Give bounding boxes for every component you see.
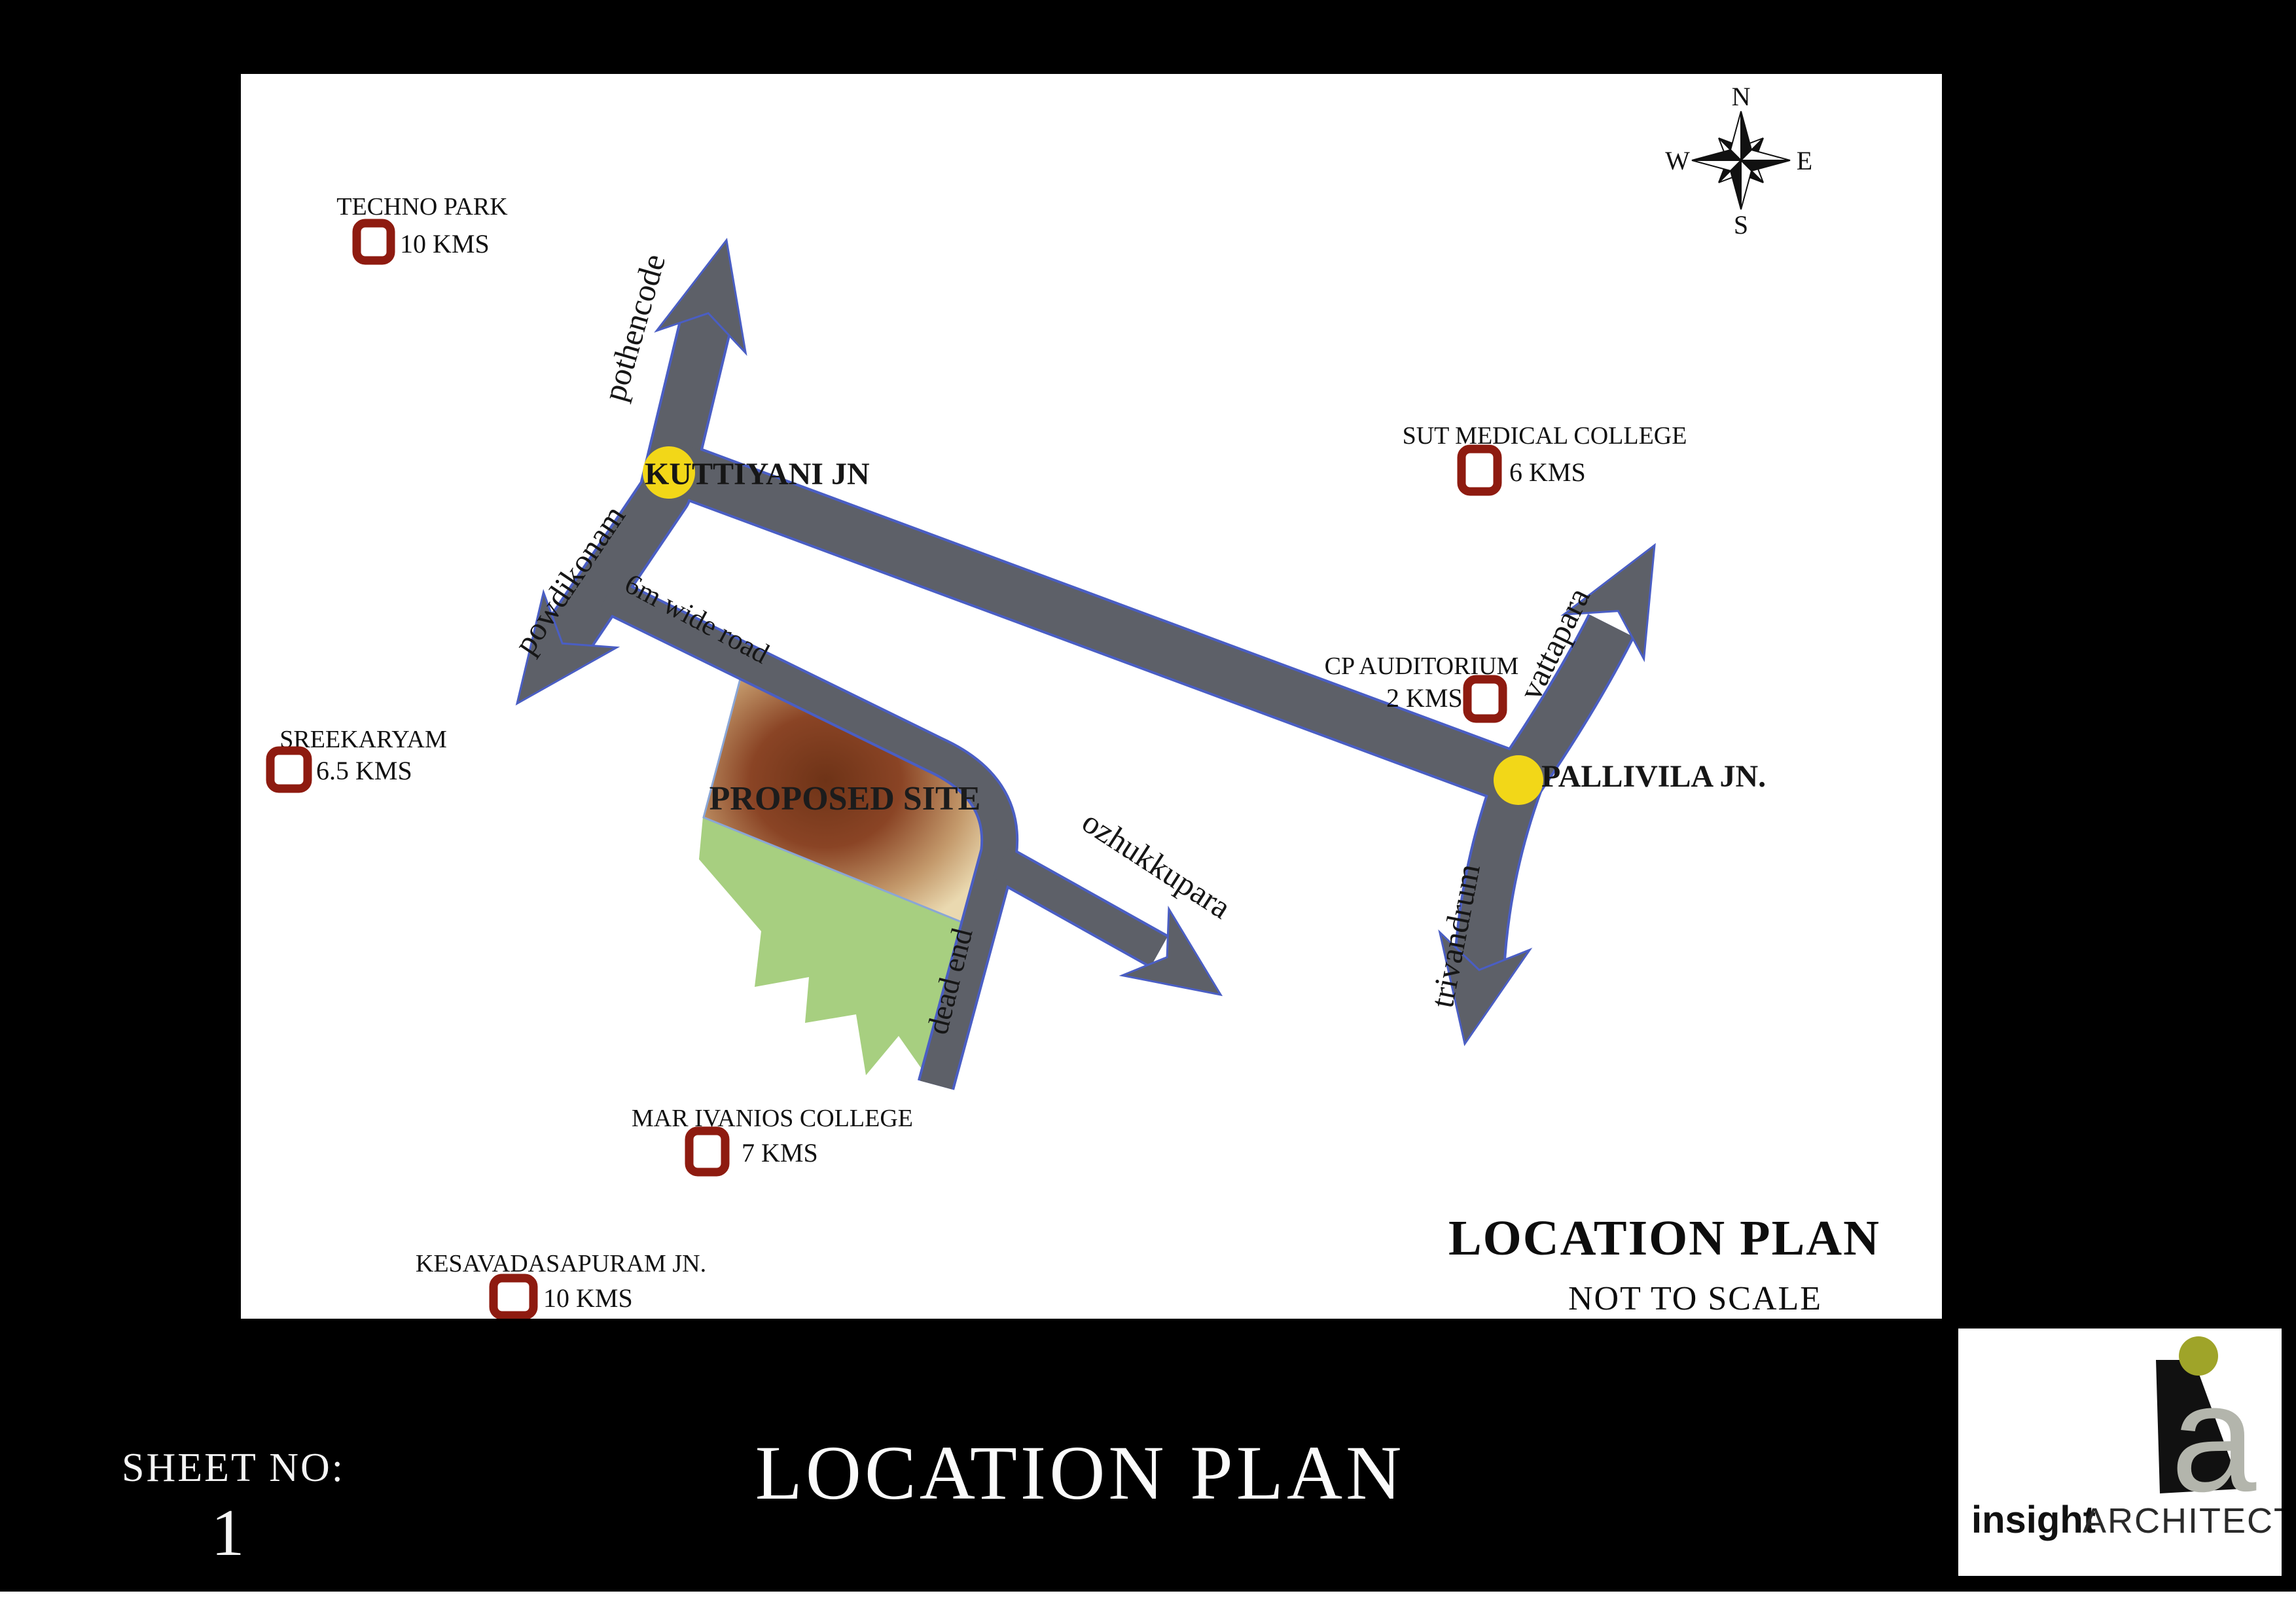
firm-name-primary: insight	[1971, 1499, 2096, 1541]
landmark-marker-icon	[270, 751, 308, 789]
logo-letter-a: a	[2171, 1351, 2257, 1524]
landmark-marker-icon	[357, 223, 391, 260]
landmark-marker-icon	[1467, 679, 1503, 719]
sheet-no-label: SHEET NO:	[122, 1445, 345, 1491]
drawing-title: LOCATION PLAN	[687, 1435, 1473, 1512]
road-ozhukkupara	[1000, 863, 1159, 952]
landmark-marker-icon	[689, 1131, 725, 1172]
sheet-number: 1	[188, 1500, 267, 1567]
landmark-sreekaryam: SREEKARYAM 6.5 KMS	[270, 726, 447, 789]
label-proposed-site: PROPOSED SITE	[709, 780, 981, 817]
landmark-name: MAR IVANIOS COLLEGE	[632, 1105, 913, 1132]
landmark-techno-park: TECHNO PARK 10 KMS	[336, 193, 508, 260]
landmark-distance: 10 KMS	[400, 229, 490, 259]
landmark-name: TECHNO PARK	[336, 193, 508, 221]
compass-west-label: W	[1665, 146, 1690, 175]
firm-name-secondary: ARCHITECTS	[2083, 1501, 2282, 1541]
compass-east-label: E	[1797, 146, 1812, 175]
label-kuttiyani-jn: KUTTIYANI JN	[645, 457, 870, 491]
landmark-name: KESAVADASAPURAM JN.	[416, 1250, 706, 1277]
landmark-marker-icon	[493, 1278, 533, 1315]
landmark-distance: 6 KMS	[1509, 457, 1586, 487]
landmark-distance: 10 KMS	[543, 1283, 633, 1313]
landmark-sut-medical-college: SUT MEDICAL COLLEGE 6 KMS	[1403, 422, 1687, 491]
landmark-name: SUT MEDICAL COLLEGE	[1403, 422, 1687, 450]
firm-logo-box: a insight ARCHITECTS	[1958, 1329, 2282, 1576]
firm-logo: a insight ARCHITECTS	[1958, 1329, 2282, 1576]
landmark-distance: 2 KMS	[1386, 683, 1463, 713]
landmark-distance: 7 KMS	[742, 1138, 818, 1168]
pallivila-junction-dot	[1494, 755, 1543, 805]
location-plan-map: pothencode powdikonam 6m wide road dead …	[241, 74, 1942, 1319]
compass-rose-icon: N E S W	[1665, 82, 1812, 240]
bottom-margin-strip	[0, 1592, 2296, 1623]
landmark-marker-icon	[1462, 449, 1498, 491]
map-scale-note: NOT TO SCALE	[1568, 1280, 1822, 1317]
compass-north-label: N	[1732, 82, 1751, 111]
landmark-distance: 6.5 KMS	[316, 756, 412, 785]
landmark-kesavadasapuram-jn: KESAVADASAPURAM JN. 10 KMS	[416, 1250, 706, 1315]
sheet-canvas: pothencode powdikonam 6m wide road dead …	[0, 0, 2296, 1623]
map-title: LOCATION PLAN	[1448, 1211, 1880, 1266]
map-drawing: pothencode powdikonam 6m wide road dead …	[241, 74, 1942, 1319]
landmark-mar-ivanios-college: MAR IVANIOS COLLEGE 7 KMS	[632, 1105, 913, 1172]
compass-south-label: S	[1734, 210, 1748, 240]
label-pallivila-jn: PALLIVILA JN.	[1541, 759, 1766, 794]
